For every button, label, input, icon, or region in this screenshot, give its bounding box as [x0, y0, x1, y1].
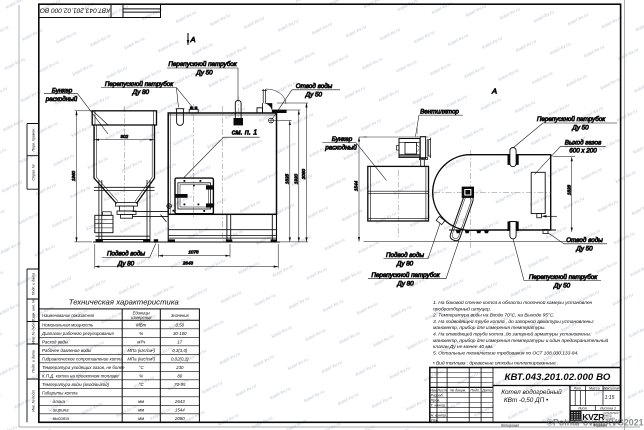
svg-text:70-95: 70-95 [174, 382, 186, 387]
svg-text:Отвод воды: Отвод воды [296, 82, 333, 90]
svg-text:°С: °С [139, 382, 145, 387]
svg-text:Лист: Лист [436, 388, 446, 392]
svg-text:Ду 50: Ду 50 [553, 282, 571, 289]
svg-text:230: 230 [175, 365, 184, 370]
svg-text:Номинальная мощность: Номинальная мощность [42, 322, 94, 327]
svg-text:2. Температура воды на Входе: 2. Температура воды на Входе 70°С, на Вы… [432, 313, 555, 319]
svg-text:пробоотборный штуцер.: пробоотборный штуцер. [433, 305, 491, 312]
svg-text:А: А [491, 87, 497, 96]
svg-text:1920: 1920 [293, 173, 298, 184]
svg-text:2080: 2080 [301, 168, 306, 180]
svg-text:Температура уходящих газов, не: Температура уходящих газов, не более [42, 365, 125, 370]
svg-text:КВт -0,50 ДП •: КВт -0,50 ДП • [504, 397, 549, 404]
svg-text:0,02(0,2): 0,02(0,2) [171, 356, 189, 361]
svg-text:2643: 2643 [174, 399, 185, 404]
svg-text:Пров.: Пров. [431, 399, 440, 403]
svg-text:Перепускной патрубок: Перепускной патрубок [537, 115, 606, 123]
svg-text:Т. контр.: Т. контр. [431, 404, 447, 408]
svg-text:Ду 50: Ду 50 [305, 92, 323, 99]
svg-text:мм: мм [138, 407, 144, 412]
svg-text:- длина: - длина [50, 399, 65, 404]
svg-text:№ докум.: № докум. [450, 388, 466, 392]
svg-text:манометр, прибор для измерения: манометр, прибор для измерения температу… [433, 337, 609, 344]
svg-text:Изм: Изм [430, 388, 437, 392]
svg-text:Перепускной патрубок: Перепускной патрубок [105, 80, 174, 88]
svg-text:Котел водогрейный: Котел водогрейный [501, 388, 562, 396]
svg-text:МПа (кгс/см²): МПа (кгс/см²) [127, 356, 155, 361]
svg-text:Ду 80: Ду 80 [396, 260, 414, 267]
svg-text:30-100: 30-100 [173, 331, 187, 336]
svg-text:Лист: Лист [577, 407, 587, 411]
svg-text:измерения: измерения [131, 315, 152, 320]
svg-text:1828: 1828 [566, 184, 571, 195]
svg-text:Листов 1: Листов 1 [599, 407, 616, 411]
svg-text:Значения: Значения [171, 313, 190, 318]
svg-text:3. На подводящей трубе котла: 3. На подводящей трубе котла , до запорн… [433, 318, 595, 325]
svg-text:1:15: 1:15 [605, 395, 615, 401]
svg-text:Масштаб: Масштаб [603, 386, 621, 390]
svg-text:Ду 80: Ду 80 [117, 261, 135, 268]
svg-text:Утв.: Утв. [431, 419, 439, 423]
svg-text:902: 902 [120, 134, 128, 139]
svg-text:Бункер: Бункер [332, 136, 353, 143]
svg-text:мм: мм [138, 416, 144, 421]
svg-text:Перепускной патрубок: Перепускной патрубок [529, 273, 598, 281]
svg-text:1544: 1544 [175, 407, 185, 412]
svg-text:А: А [190, 35, 196, 44]
svg-text:манометр, прибор для измерения: манометр, прибор для измерения температу… [433, 325, 546, 331]
svg-text:Инв. № подл.: Инв. № подл. [32, 389, 36, 411]
svg-text:К.П.Д. котла на проектном топл: К.П.Д. котла на проектном топливе [42, 373, 119, 378]
svg-text:Отвод воды: Отвод воды [566, 236, 603, 244]
svg-text:см. п. 1: см. п. 1 [232, 128, 258, 137]
svg-text:0,50: 0,50 [176, 322, 185, 327]
svg-text:©PolnaPovalaXVG2021: ©PolnaPovalaXVG2021 [547, 417, 644, 427]
svg-text:Ду 80: Ду 80 [396, 281, 414, 288]
svg-text:Диапазон рабочего регулировани: Диапазон рабочего регулирования [41, 331, 114, 336]
svg-text:%: % [139, 331, 143, 336]
svg-text:Подп.: Подп. [470, 388, 480, 392]
svg-text:1. На боковой стенке котла в: 1. На боковой стенке котла в области топ… [433, 299, 593, 306]
svg-text:Масса: Масса [589, 386, 600, 390]
svg-text:°С: °С [139, 365, 145, 370]
svg-text:Дата: Дата [481, 388, 491, 392]
svg-text:расходный: расходный [324, 144, 357, 152]
svg-text:600 х 200: 600 х 200 [569, 147, 597, 154]
svg-text:Ду 80: Ду 80 [132, 89, 150, 96]
svg-text:80: 80 [177, 373, 182, 378]
svg-text:1960: 1960 [71, 170, 76, 181]
svg-text:17: 17 [177, 339, 182, 344]
svg-text:2643: 2643 [182, 261, 194, 266]
svg-text:Гидравлическое сопротивление к: Гидравлическое сопротивление котла [42, 356, 123, 361]
svg-text:Рабочее давление воды: Рабочее давление воды [42, 348, 92, 353]
svg-text:5. Остальные технические треб: 5. Остальные технические требования по О… [433, 350, 578, 356]
svg-text:0,3(3,0): 0,3(3,0) [172, 348, 188, 353]
svg-text:Ду 50: Ду 50 [195, 69, 213, 76]
svg-text:Подп. и дата: Подп. и дата [32, 273, 36, 296]
svg-text:Температура воды (вход/выход): Температура воды (вход/выход) [42, 382, 110, 387]
svg-text:клапан Ду не менее 40 мм.: клапан Ду не менее 40 мм. [433, 344, 493, 350]
svg-text:Перепускной патрубок: Перепускной патрубок [168, 60, 237, 68]
svg-text:Выход газов: Выход газов [565, 139, 602, 147]
svg-text:Расход воды: Расход воды [42, 339, 69, 344]
svg-text:2080: 2080 [174, 416, 185, 421]
svg-text:Бункер: Бункер [52, 87, 73, 94]
svg-text:Справ. №: Справ. № [32, 164, 36, 180]
svg-text:1544: 1544 [354, 180, 359, 191]
svg-text:МПа (кгс/см²): МПа (кгс/см²) [127, 348, 155, 353]
svg-text:Н. контр.: Н. контр. [431, 414, 447, 418]
svg-text:Подп. и дата: Подп. и дата [32, 350, 36, 373]
svg-text:м³/ч: м³/ч [137, 339, 146, 344]
svg-text:Лит.: Лит. [573, 386, 582, 390]
svg-text:• Вид топлива : древесные от: • Вид топлива : древесные отходы пеллети… [433, 361, 558, 367]
svg-text:мм: мм [138, 399, 144, 404]
svg-text:Вентилятор: Вентилятор [420, 108, 459, 115]
svg-text:- высота: - высота [50, 416, 69, 421]
svg-text:Ду 50: Ду 50 [575, 245, 593, 252]
svg-text:Подвод воды: Подвод воды [107, 250, 145, 258]
svg-text:Техническая характеристика: Техническая характеристика [69, 298, 180, 307]
svg-text:Разраб.: Разраб. [431, 394, 444, 398]
svg-text:Перепускной патрубок: Перепускной патрубок [371, 271, 440, 279]
svg-text:Инв. № дубл.: Инв. № дубл. [32, 322, 36, 344]
svg-text:Габариты котла: Габариты котла [42, 390, 78, 395]
svg-text:Ду 50: Ду 50 [571, 125, 589, 132]
svg-text:КВТ.043.201.02.000 ВО: КВТ.043.201.02.000 ВО [40, 6, 110, 13]
svg-text:1078: 1078 [188, 250, 199, 255]
svg-text:Подвод воды: Подвод воды [386, 251, 424, 259]
svg-text:Взам. инв. №: Взам. инв. № [32, 299, 36, 321]
svg-text:Перв. примен.: Перв. примен. [32, 128, 36, 152]
svg-text:Копировал: Копировал [501, 424, 519, 428]
svg-text:%: % [139, 373, 143, 378]
svg-text:расходный: расходный [45, 95, 78, 103]
svg-text:4. На отводящей трубе котла ,: 4. На отводящей трубе котла ,до запорной… [433, 331, 592, 338]
svg-text:Наименование показателя: Наименование показателя [42, 313, 95, 318]
svg-text:1825: 1825 [284, 173, 289, 184]
svg-text:- ширина: - ширина [50, 407, 69, 412]
svg-text:КВТ.043.201.02.000 ВО: КВТ.043.201.02.000 ВО [505, 372, 611, 383]
svg-text:МВт: МВт [136, 322, 147, 327]
